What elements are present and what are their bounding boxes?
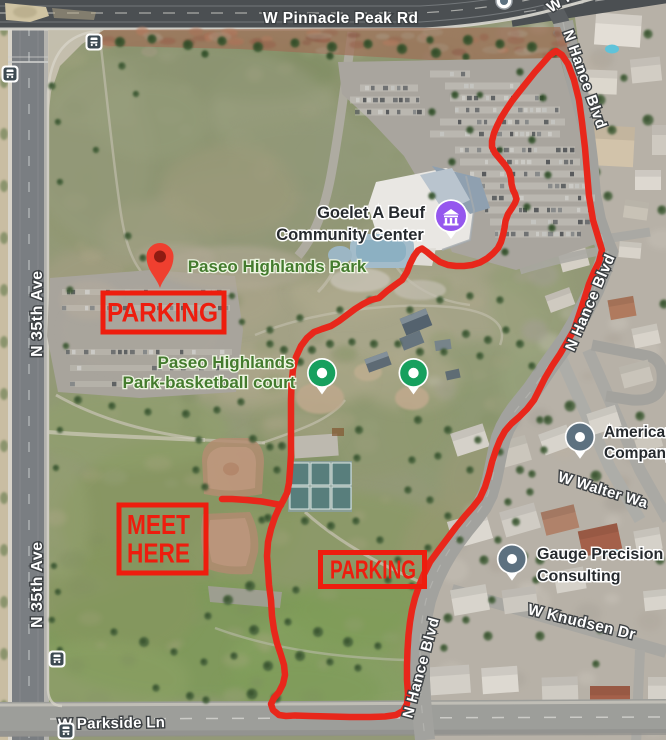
svg-text:Paseo Highlands Park: Paseo Highlands Park [188,257,367,276]
svg-text:HERE: HERE [127,538,190,569]
svg-text:N 35th Ave: N 35th Ave [29,270,46,357]
svg-text:Community Center: Community Center [276,226,424,244]
svg-text:Consulting: Consulting [537,568,621,585]
svg-text:PARKING: PARKING [330,555,416,585]
svg-text:Company: Company [604,445,666,462]
svg-text:Paseo Highlands: Paseo Highlands [158,353,295,372]
svg-text:American: American [604,424,666,441]
svg-text:N 35th Ave: N 35th Ave [29,541,46,628]
svg-text:W Pinnacle Peak Rd: W Pinnacle Peak Rd [263,10,418,27]
svg-text:Gauge Precision: Gauge Precision [537,546,663,563]
svg-text:PARKING: PARKING [107,298,218,328]
svg-text:Goelet A Beuf: Goelet A Beuf [317,204,425,222]
svg-text:Park-basketball court: Park-basketball court [123,373,296,392]
svg-text:MEET: MEET [127,509,190,540]
